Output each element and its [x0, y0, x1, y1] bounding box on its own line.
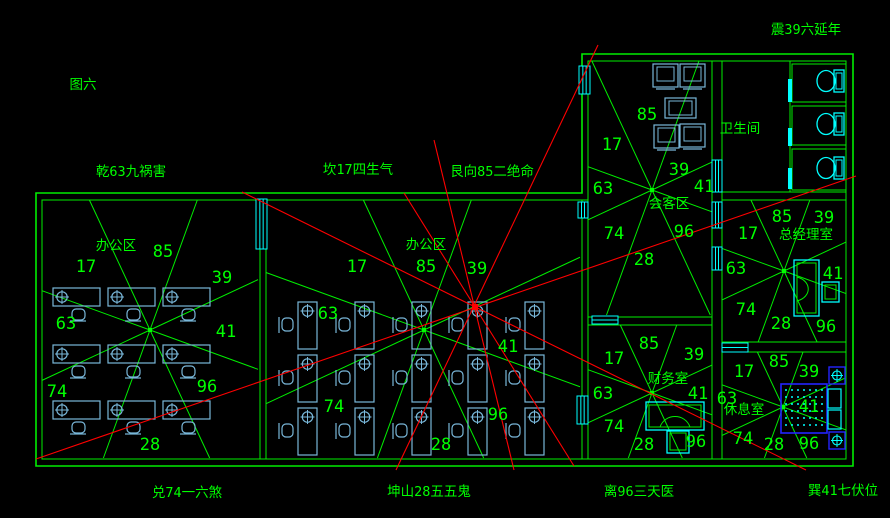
room-label-finance-room: 财务室 [648, 370, 689, 387]
bed-blanket-dot [797, 424, 799, 426]
sector-number-manager-room-74: 74 [736, 300, 756, 320]
sector-number-meeting-room-96: 96 [674, 222, 694, 242]
sector-number-office-left-74: 74 [47, 382, 67, 402]
sector-number-meeting-room-41: 41 [694, 177, 714, 197]
sector-number-rest-room-39: 39 [799, 362, 819, 382]
compass-center-manager-room [783, 270, 786, 273]
sector-number-finance-room-39: 39 [684, 345, 704, 365]
window-fixture [579, 66, 590, 94]
sector-number-office-middle-17: 17 [347, 257, 367, 277]
analysis-center-star [473, 305, 478, 310]
perimeter-label-dir-xun: 巽41七伏位 [808, 483, 878, 499]
compass-center-office-left [149, 329, 152, 332]
compass-center-rest-room [782, 406, 785, 409]
window-fixture [256, 199, 267, 249]
window-fixture [577, 396, 588, 424]
sector-number-office-left-28: 28 [140, 435, 160, 455]
bed-blanket-dot [821, 389, 823, 391]
bed-blanket-dot [815, 417, 817, 419]
bed-blanket-dot [785, 403, 787, 405]
perimeter-label-dir-zhen: 震39六延年 [771, 22, 841, 38]
bed-blanket-dot [803, 424, 805, 426]
sector-number-office-middle-96: 96 [488, 405, 508, 425]
sector-number-office-left-17: 17 [76, 257, 96, 277]
sector-number-office-middle-28: 28 [431, 435, 451, 455]
bed-blanket-dot [791, 424, 793, 426]
sector-number-meeting-room-17: 17 [602, 135, 622, 155]
bed-blanket-dot [791, 403, 793, 405]
sector-number-office-middle-63: 63 [318, 304, 338, 324]
bed-blanket-dot [821, 396, 823, 398]
bed-blanket-dot [809, 417, 811, 419]
bed-blanket-dot [815, 424, 817, 426]
bed-blanket-dot [791, 417, 793, 419]
bed-blanket-dot [785, 389, 787, 391]
sector-number-finance-room-41: 41 [688, 384, 708, 404]
compass-center-office-middle [423, 329, 426, 332]
cad-floorplan-viewport: 办公区1785396341749628办公区1785396341749628会客… [0, 0, 890, 518]
sector-number-office-left-63: 63 [56, 314, 76, 334]
floor-plan-canvas: 办公区1785396341749628办公区1785396341749628会客… [0, 0, 890, 518]
sector-number-rest-room-96: 96 [799, 434, 819, 454]
bed-blanket-dot [797, 389, 799, 391]
sector-number-finance-room-28: 28 [634, 435, 654, 455]
sector-number-manager-room-41: 41 [823, 264, 843, 284]
room-label-office-left: 办公区 [96, 238, 137, 254]
perimeter-label-dir-gen: 艮向85二绝命 [450, 163, 534, 180]
sector-number-manager-room-39: 39 [814, 208, 834, 228]
sector-number-finance-room-17: 17 [604, 349, 624, 369]
sector-number-meeting-room-28: 28 [634, 250, 654, 270]
perimeter-label-figure-number: 图六 [70, 77, 97, 93]
bed-blanket-dot [815, 389, 817, 391]
room-label-meeting-room: 会客区 [649, 195, 690, 212]
bed-blanket-dot [821, 410, 823, 412]
sector-number-manager-room-28: 28 [771, 314, 791, 334]
bed-blanket-dot [803, 417, 805, 419]
sector-number-office-middle-74: 74 [324, 397, 344, 417]
perimeter-label-dir-qian: 乾63九祸害 [96, 164, 166, 180]
perimeter-label-dir-kan: 坎17四生气 [323, 162, 393, 178]
sector-number-rest-room-85: 85 [769, 352, 789, 372]
sector-number-office-middle-39: 39 [467, 259, 487, 279]
sector-number-finance-room-96: 96 [686, 432, 706, 452]
sector-number-rest-room-74: 74 [733, 429, 753, 449]
compass-center-meeting-room [651, 189, 654, 192]
sector-number-manager-room-63: 63 [726, 259, 746, 279]
room-label-bathroom: 卫生间 [720, 121, 761, 137]
sector-number-meeting-room-63: 63 [593, 179, 613, 199]
perimeter-label-dir-dui: 兑74一六煞 [152, 485, 223, 501]
sector-number-rest-room-41: 41 [799, 397, 819, 417]
window-fixture [712, 247, 722, 270]
sector-number-meeting-room-74: 74 [604, 224, 624, 244]
bed-blanket-dot [821, 417, 823, 419]
room-label-office-middle: 办公区 [406, 237, 447, 253]
bed-blanket-dot [803, 389, 805, 391]
bed-blanket-dot [809, 424, 811, 426]
bed-blanket-dot [791, 410, 793, 412]
sector-number-office-left-96: 96 [197, 377, 217, 397]
sector-number-rest-room-63: 63 [717, 389, 737, 409]
sector-number-finance-room-85: 85 [639, 334, 659, 354]
sector-number-manager-room-85: 85 [772, 207, 792, 227]
sector-number-meeting-room-39: 39 [669, 160, 689, 180]
bed-blanket-dot [785, 424, 787, 426]
perimeter-label-dir-li: 离96三天医 [604, 483, 674, 500]
bed-blanket-dot [785, 417, 787, 419]
sector-number-meeting-room-85: 85 [637, 105, 657, 125]
sector-number-manager-room-96: 96 [816, 317, 836, 337]
bed-blanket-dot [785, 396, 787, 398]
sector-number-office-left-85: 85 [153, 242, 173, 262]
sector-number-finance-room-74: 74 [604, 417, 624, 437]
bed-blanket-dot [785, 410, 787, 412]
bed-blanket-dot [821, 424, 823, 426]
bed-blanket-dot [821, 403, 823, 405]
bed-blanket-dot [797, 417, 799, 419]
window-fixture [578, 202, 588, 218]
sector-number-rest-room-17: 17 [734, 362, 754, 382]
sector-number-finance-room-63: 63 [593, 384, 613, 404]
bed-blanket-dot [791, 389, 793, 391]
sector-number-rest-room-28: 28 [764, 435, 784, 455]
bed-blanket-dot [809, 389, 811, 391]
sector-number-manager-room-17: 17 [738, 224, 758, 244]
sector-number-office-left-39: 39 [212, 268, 232, 288]
bed-blanket-dot [791, 396, 793, 398]
sector-number-office-middle-41: 41 [498, 337, 518, 357]
sector-number-office-left-41: 41 [216, 322, 236, 342]
perimeter-label-dir-kun: 坤山28五五鬼 [387, 484, 471, 500]
room-label-manager-room: 总经理室 [779, 226, 833, 243]
sector-number-office-middle-85: 85 [416, 257, 436, 277]
